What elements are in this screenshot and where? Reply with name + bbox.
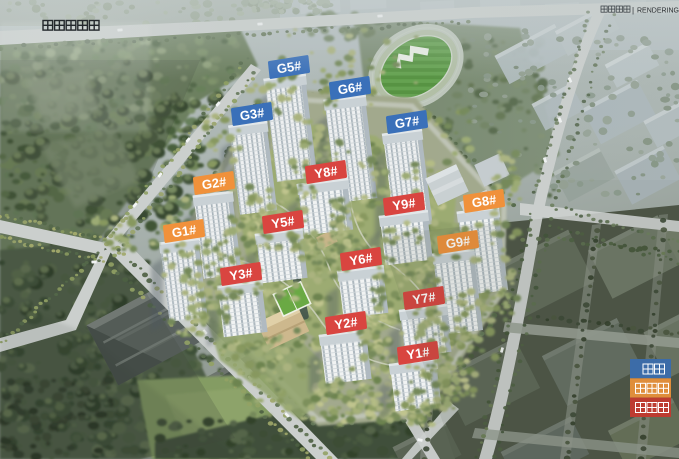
svg-text:RENDERING: RENDERING (637, 8, 679, 15)
svg-text:|: | (632, 6, 634, 15)
